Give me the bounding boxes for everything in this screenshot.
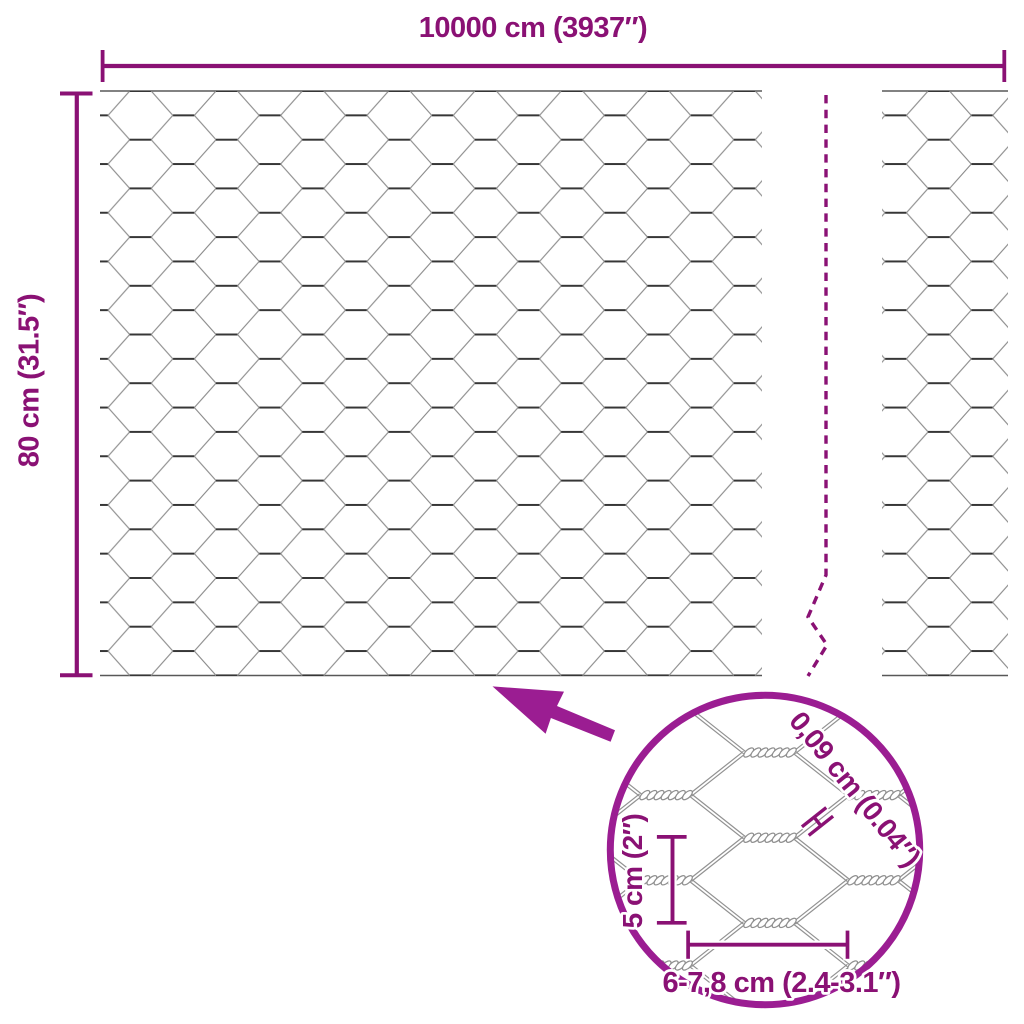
- svg-text:5 cm (2″): 5 cm (2″): [617, 814, 648, 929]
- svg-text:80 cm (31.5″): 80 cm (31.5″): [14, 294, 46, 467]
- svg-text:6-7,8 cm (2.4-3.1″): 6-7,8 cm (2.4-3.1″): [662, 967, 900, 999]
- svg-text:10000 cm (3937″): 10000 cm (3937″): [419, 12, 647, 44]
